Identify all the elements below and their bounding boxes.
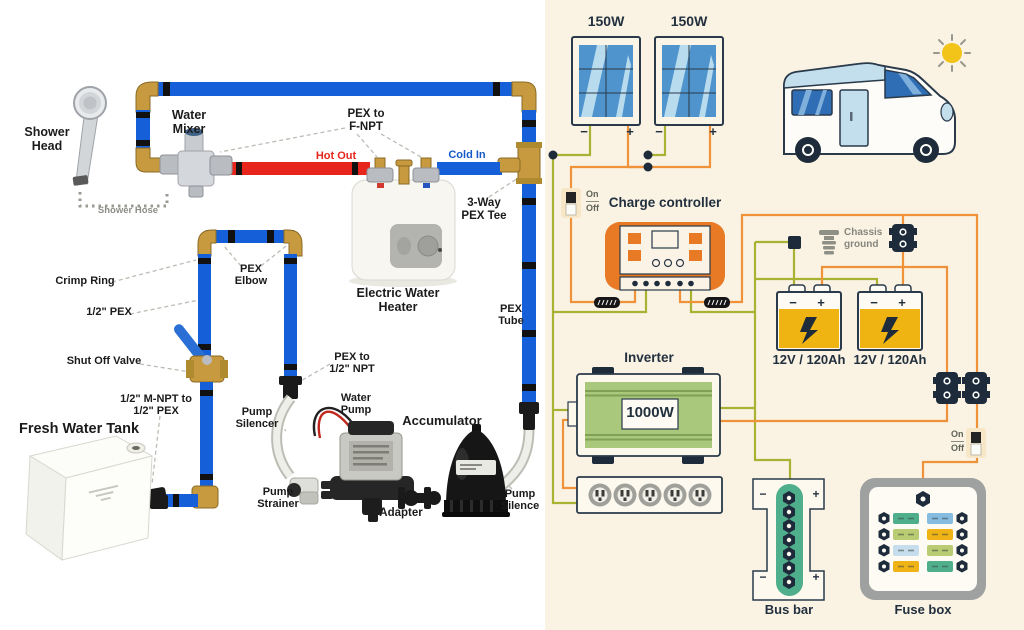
label-chassis-ground: Chassisground	[844, 227, 882, 251]
controller-display	[652, 231, 678, 248]
label-hot-out: Hot Out	[316, 150, 356, 162]
fuse-box	[860, 478, 986, 600]
label-adapter: Adapter	[379, 507, 422, 520]
panel1-plus-terminal: +	[626, 124, 634, 139]
label-pump-silence: PumpSilence	[501, 488, 540, 513]
battery-2	[858, 285, 922, 350]
solar-panel-2	[655, 37, 723, 125]
breaker-block-left	[933, 372, 961, 404]
shower-hose-dotted	[80, 192, 167, 206]
battery2-plus: +	[898, 295, 906, 310]
label-shut-off-valve: Shut Off Valve	[67, 355, 142, 367]
switch1-labels: OnOff	[586, 190, 599, 216]
pex-elbow-left	[198, 230, 216, 256]
label-water-pump: WaterPump	[341, 392, 372, 417]
label-fuse-box: Fuse box	[894, 603, 951, 618]
van-door	[840, 90, 868, 146]
label-m-npt-to-pex: 1/2" M-NPT to1/2" PEX	[120, 393, 192, 418]
ground-junction	[788, 236, 801, 249]
label-pex-tube: PEXTube	[498, 303, 523, 328]
label-panel2-wattage: 150W	[671, 14, 708, 30]
label-pex-to-f-npt: PEX toF-NPT	[347, 108, 384, 134]
outlet-strip	[577, 477, 722, 513]
tank-to-pump-loop	[137, 230, 302, 509]
battery2-minus: −	[870, 295, 878, 310]
label-inverter: Inverter	[624, 350, 674, 365]
on-off-switch-1	[561, 188, 581, 218]
adapter-fittings	[398, 487, 441, 509]
label-pump-silencer: PumpSilencer	[236, 406, 279, 431]
label-electric-water-heater: Electric WaterHeater	[357, 286, 440, 314]
electric-water-heater	[349, 158, 457, 287]
camper-van-illustration	[784, 63, 955, 163]
battery1-minus: −	[789, 295, 797, 310]
rear-wheel	[795, 137, 821, 163]
shower-head	[73, 87, 106, 186]
label-accumulator: Accumulator	[402, 414, 481, 429]
charge-controller	[605, 222, 725, 290]
label-pex-to-half-npt: PEX to1/2" NPT	[329, 351, 375, 376]
front-wheel	[913, 137, 939, 163]
pex-elbow-top-left	[136, 82, 158, 112]
on-off-switch-2	[966, 428, 986, 458]
chassis-ground-screw-icon	[819, 230, 839, 255]
label-panel1-wattage: 150W	[588, 14, 625, 30]
plumbing-diagram	[0, 0, 545, 630]
busbar-top-plus: +	[812, 487, 819, 501]
switch2-labels: OnOff	[951, 430, 964, 456]
panel1-minus-terminal: −	[580, 124, 588, 139]
breaker-block-top	[889, 224, 917, 252]
label-pex-elbow: PEXElbow	[235, 263, 267, 288]
infographic: ShowerHead WaterMixer Shower Hose PEX to…	[0, 0, 1024, 630]
label-shower-head: ShowerHead	[24, 125, 69, 153]
label-three-way-pex-tee: 3-WayPEX Tee	[461, 197, 506, 223]
three-way-pex-tee	[498, 142, 542, 184]
sun-icon	[934, 35, 970, 71]
label-crimp-ring: Crimp Ring	[55, 275, 114, 287]
label-fresh-water-tank: Fresh Water Tank	[19, 421, 139, 437]
panel2-minus-terminal: −	[655, 124, 663, 139]
electrical-diagram	[545, 0, 1024, 630]
hot-out-pipe	[230, 162, 370, 175]
junction-dots	[549, 151, 653, 172]
label-battery2: 12V / 120Ah	[854, 353, 927, 368]
water-mixer	[136, 128, 232, 197]
label-battery1: 12V / 120Ah	[773, 353, 846, 368]
plumbing-diagram-panel: ShowerHead WaterMixer Shower Hose PEX to…	[0, 0, 545, 630]
label-shower-hose: Shower Hose	[98, 206, 158, 217]
label-pump-strainer: PumpStrainer	[257, 486, 299, 511]
busbar-top-minus: −	[759, 487, 766, 501]
label-water-mixer: WaterMixer	[172, 108, 206, 136]
busbar-bottom-plus: +	[812, 570, 819, 584]
label-charge-controller: Charge controller	[609, 195, 722, 210]
battery-1	[777, 285, 841, 350]
pex-elbow-right	[284, 230, 302, 256]
pump-silence-fitting	[519, 402, 539, 430]
pex-to-half-npt-fitting	[279, 376, 302, 399]
inline-fuse-right	[704, 297, 730, 308]
inline-fuse-left	[594, 297, 620, 308]
pex-elbow-top-right	[512, 82, 536, 112]
label-half-inch-pex: 1/2" PEX	[86, 306, 132, 318]
fresh-water-tank	[26, 436, 152, 560]
side-window	[792, 90, 832, 115]
label-bus-bar: Bus bar	[765, 603, 813, 618]
electrical-diagram-panel: 150W 150W − + − + OnOff Charge controlle…	[545, 0, 1024, 630]
solar-panel-1	[572, 37, 640, 125]
panel2-plus-terminal: +	[709, 124, 717, 139]
label-cold-in: Cold In	[448, 149, 485, 161]
busbar-bottom-minus: −	[759, 570, 766, 584]
battery1-plus: +	[817, 295, 825, 310]
label-inverter-power: 1000W	[626, 405, 674, 422]
cold-in-pipe	[437, 162, 500, 175]
breaker-block-right	[962, 372, 990, 404]
power-outlets	[589, 484, 712, 507]
